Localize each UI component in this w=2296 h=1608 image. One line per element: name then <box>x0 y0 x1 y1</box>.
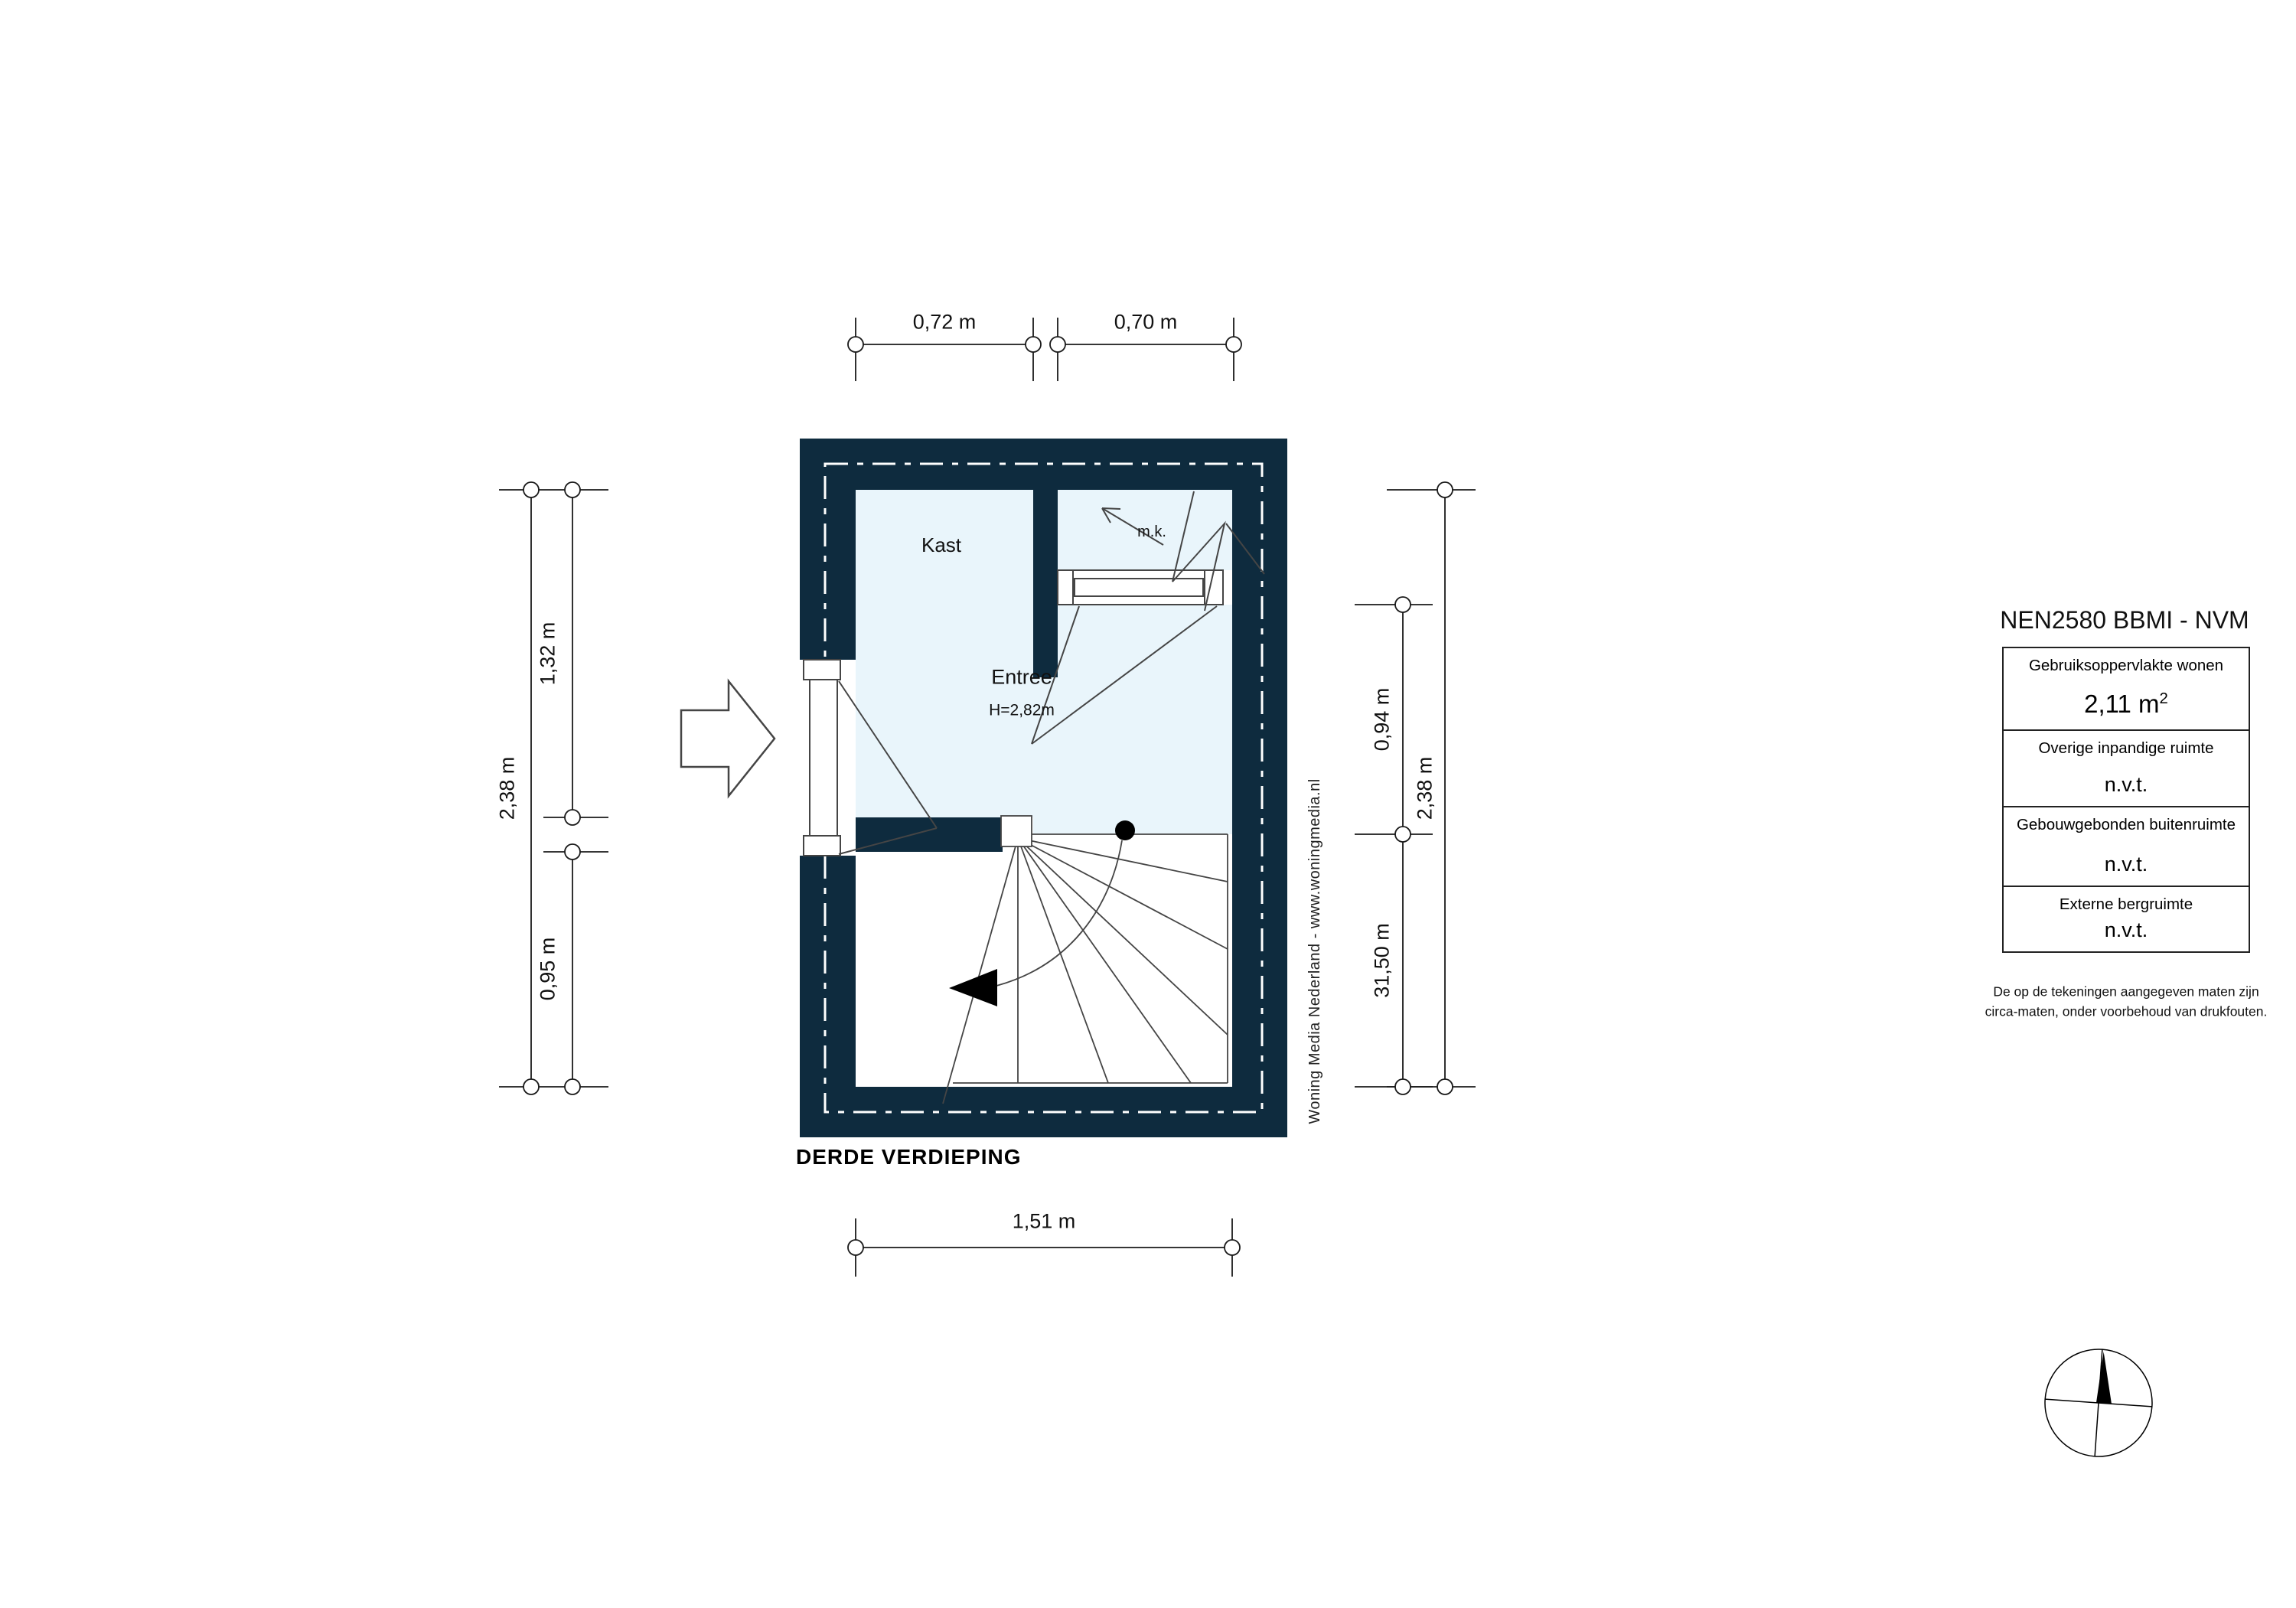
entree-fill-right <box>1058 605 1232 834</box>
wall-stub-kast-mk <box>1033 490 1058 677</box>
room-label-entree: Entree <box>991 667 1052 688</box>
dim-label-top-left: 0,72 m <box>913 312 977 333</box>
compass-icon <box>2041 1345 2155 1460</box>
legend-row-value: n.v.t. <box>2105 852 2148 886</box>
legend-table: Gebruiksoppervlakte wonen 2,11 m2 Overig… <box>2002 647 2250 953</box>
legend-note-line2: circa-maten, onder voorbehoud van drukfo… <box>1985 1005 2268 1019</box>
legend-row-gebruiksoppervlakte: Gebruiksoppervlakte wonen 2,11 m2 <box>2004 648 2249 729</box>
legend-title: NEN2580 BBMI - NVM <box>2000 608 2249 632</box>
legend-value-sup: 2 <box>2160 690 2168 707</box>
legend-value-text: n.v.t. <box>2105 918 2148 941</box>
floorplan-drawing <box>0 0 2296 1608</box>
legend-value-text: n.v.t. <box>2105 853 2148 876</box>
legend-value-text: n.v.t. <box>2105 773 2148 796</box>
legend-row-label: Gebouwgebonden buitenruimte <box>2017 807 2236 834</box>
floorplan-page: 0,72 m 0,70 m 1,32 m 2,38 m 0,95 m 0,94 … <box>0 0 2296 1608</box>
dim-label-right-inner-top: 0,94 m <box>1372 688 1393 752</box>
legend-value-text: 2,11 m <box>2084 690 2159 718</box>
legend-row-label: Overige inpandige ruimte <box>2038 731 2213 758</box>
legend-row-label: Gebruiksoppervlakte wonen <box>2029 648 2223 675</box>
dim-label-bottom: 1,51 m <box>1013 1212 1076 1232</box>
dim-label-left-inner-top: 1,32 m <box>538 622 559 686</box>
dim-label-left-outer: 2,38 m <box>497 757 518 820</box>
legend-row-value: n.v.t. <box>2105 772 2148 806</box>
dim-label-top-right: 0,70 m <box>1114 312 1178 333</box>
wall-stub-stairs <box>856 817 1003 852</box>
legend-row-gebouwgebonden: Gebouwgebonden buitenruimte n.v.t. <box>2004 806 2249 886</box>
room-label-entree-height: H=2,82m <box>989 703 1055 719</box>
legend-note-line1: De op de tekeningen aangegeven maten zij… <box>1993 985 2258 999</box>
legend-row-value: n.v.t. <box>2105 918 2148 951</box>
legend-row-externe: Externe bergruimte n.v.t. <box>2004 886 2249 951</box>
entrance-arrow-icon <box>681 681 775 796</box>
floor-title: DERDE VERDIEPING <box>796 1146 1022 1168</box>
legend-row-label: Externe bergruimte <box>2060 887 2193 914</box>
room-label-mk: m.k. <box>1137 524 1166 540</box>
dim-label-left-inner-bottom: 0,95 m <box>538 938 559 1001</box>
dim-label-right-inner-bottom: 31,50 m <box>1372 923 1393 998</box>
legend-row-overige: Overige inpandige ruimte n.v.t. <box>2004 729 2249 806</box>
stair-start-dot <box>1115 820 1135 840</box>
room-label-kast: Kast <box>921 535 961 555</box>
branding-text: Woning Media Nederland - www.woningmedia… <box>1307 778 1322 1124</box>
legend-row-value: 2,11 m2 <box>2084 690 2168 729</box>
dim-label-right-outer: 2,38 m <box>1415 757 1436 820</box>
